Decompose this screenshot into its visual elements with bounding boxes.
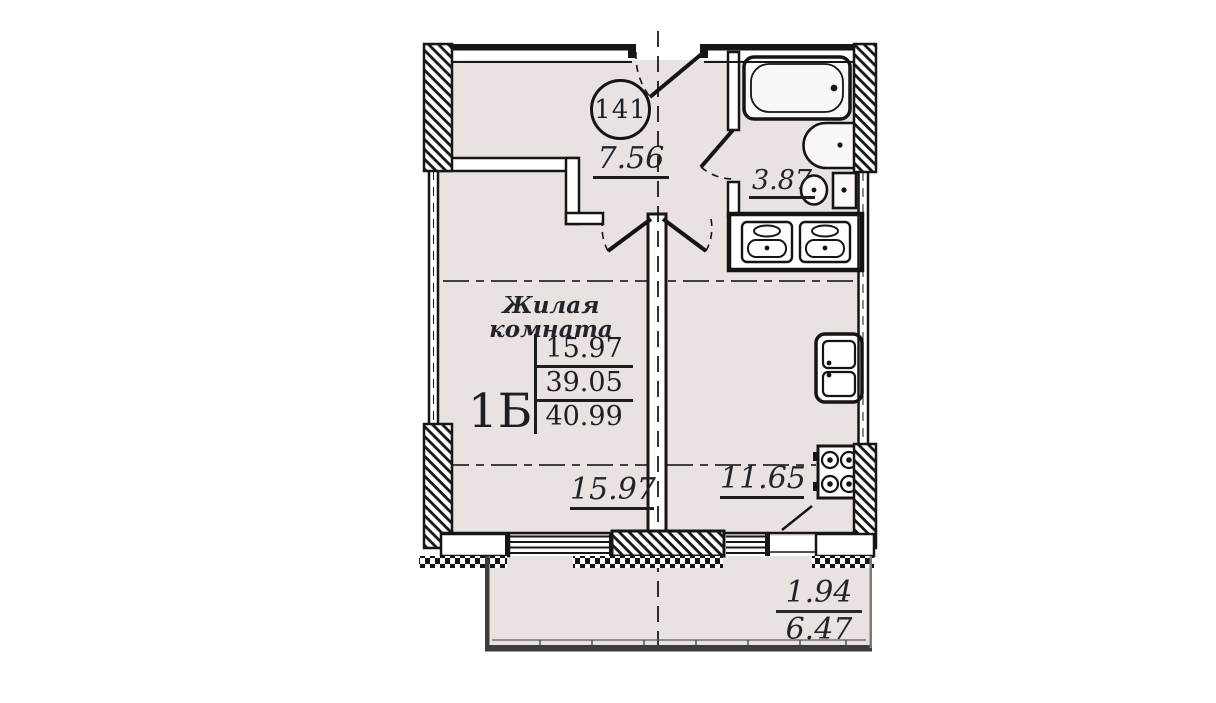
- kitchen-area-label: 11.65: [720, 463, 804, 499]
- bottom-pier-right: [816, 534, 874, 556]
- washbasin-icon: [804, 123, 856, 168]
- bottom-window-left-icon: [507, 537, 612, 554]
- apartment-number: 141: [594, 95, 647, 125]
- entrance-jamb-right: [700, 44, 708, 58]
- insulation-strip-right: [812, 556, 874, 568]
- entrance-jamb-left: [628, 44, 636, 58]
- insulation-strip-left: [419, 556, 507, 568]
- stamp-total-area: 40.99: [537, 402, 632, 433]
- bottom-pier-left: [441, 534, 509, 556]
- left-pier-bottom: [424, 424, 452, 548]
- apartment-areas-stack: 15.97 39.05 40.99: [534, 334, 632, 434]
- hall-living-wall: [441, 158, 578, 171]
- left-window-icon: [429, 171, 438, 424]
- top-wall-right: [704, 44, 876, 51]
- living-area-label: 15.97: [570, 474, 654, 510]
- bottom-pier-center: [612, 531, 724, 556]
- bathroom-wall-upper: [728, 52, 739, 130]
- balcony-full-area: 6.47: [776, 613, 862, 646]
- floor-plan-canvas: 141 7.56 3.87 Жилая комната 1Б 15.97 39.…: [0, 0, 1216, 703]
- top-wall-left: [424, 44, 632, 51]
- bottom-window-right-icon: [726, 537, 768, 554]
- apartment-type-label: 1Б: [468, 391, 534, 433]
- living-door-jamb-wall: [566, 213, 603, 224]
- bathtub-icon: [744, 57, 850, 119]
- stamp-living-area: 15.97: [537, 334, 632, 368]
- vent-shaft-icon: [729, 214, 862, 270]
- bathroom-wall-lower: [728, 182, 739, 216]
- bathroom-area-label: 3.87: [749, 167, 815, 199]
- right-pier-top: [854, 44, 876, 172]
- hall-area-label: 7.56: [593, 143, 669, 179]
- kitchen-sink-icon: [816, 334, 862, 402]
- insulation-strip-center: [573, 556, 723, 568]
- stamp-area: 39.05: [537, 368, 632, 402]
- apartment-number-badge: 141: [590, 79, 651, 140]
- balcony-coefficient-area: 1.94: [776, 577, 862, 613]
- left-pier-top: [424, 44, 452, 171]
- apartment-stamp: 1Б 15.97 39.05 40.99: [468, 334, 633, 434]
- balcony-area-fraction: 1.94 6.47: [776, 577, 862, 645]
